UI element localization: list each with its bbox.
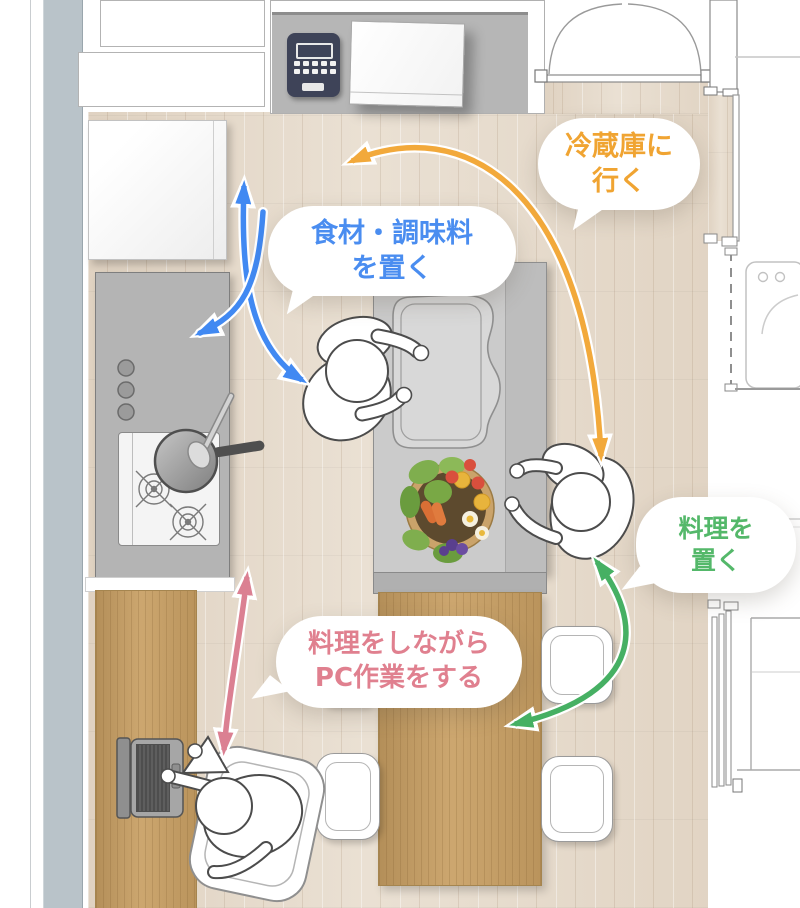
- bubble-pc-while-cooking: 料理をしながら PC作業をする: [276, 616, 522, 708]
- bubble-text: 行く: [592, 164, 646, 199]
- arrow-serve-dish: [515, 562, 626, 724]
- bubble-text: 冷蔵庫に: [565, 129, 673, 164]
- kitchen-workflow-diagram: 冷蔵庫に 行く 食材・調味料 を置く 料理を 置く 料理をしながら PC作業をす…: [0, 0, 800, 908]
- washing-machine: [746, 262, 800, 388]
- stove-knobs: [118, 360, 134, 420]
- person-serving: [505, 435, 647, 571]
- bubble-go-to-fridge: 冷蔵庫に 行く: [538, 118, 700, 210]
- bubble-text: PC作業をする: [315, 662, 483, 696]
- bubble-text: を置く: [352, 251, 433, 286]
- bubble-place-ingredients: 食材・調味料 を置く: [268, 206, 516, 296]
- stove-burner: [170, 504, 206, 540]
- bubble-text: 置く: [691, 545, 741, 578]
- bubble-text: 料理を: [678, 513, 753, 546]
- bubble-text: 食材・調味料: [311, 216, 473, 251]
- bubble-place-dish: 料理を 置く: [636, 497, 796, 593]
- arrow-desk-to-kitchen: [224, 577, 247, 750]
- kitchen-sink: [393, 295, 500, 448]
- salad-plate: [400, 455, 494, 563]
- right-rooms: [704, 57, 800, 792]
- double-door: [535, 0, 738, 96]
- frying-pan: [155, 396, 265, 492]
- sliding-door-tracks: [712, 611, 742, 792]
- bubble-text: 料理をしながら: [308, 628, 490, 662]
